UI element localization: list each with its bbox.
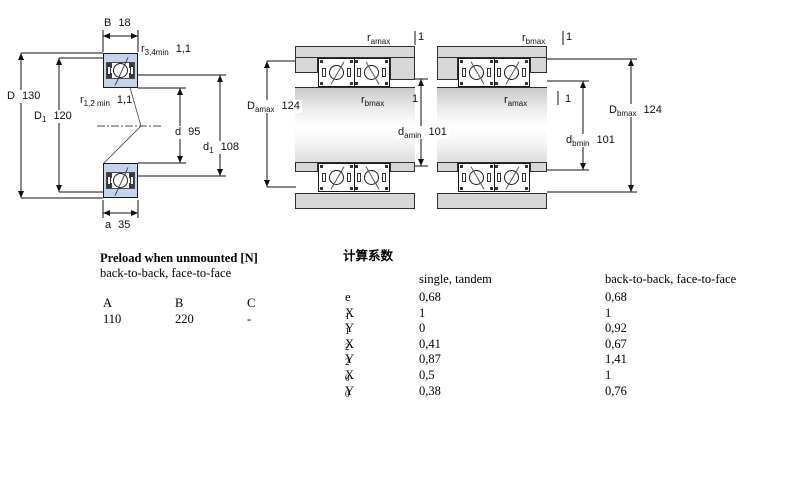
preload-value-row: 110 220 - xyxy=(100,312,340,328)
dim-label-a: a35 xyxy=(105,219,130,232)
dim-value-rbmax-mid: 1 xyxy=(412,93,418,105)
calculation-factors-table: 计算系数 single, tandem back-to-back, face-t… xyxy=(343,249,783,399)
bearing-cross-section-top xyxy=(103,53,138,88)
preload-header-row: A B C xyxy=(100,296,340,312)
shoulder-step xyxy=(390,162,415,172)
dim-value-rbmax-right: 1 xyxy=(566,31,572,43)
shoulder-step xyxy=(530,57,547,73)
bearing-cell xyxy=(354,164,389,191)
factor-row: X1 1 1 xyxy=(343,306,783,322)
figure-face-to-face xyxy=(437,46,547,209)
dim-label-ramax-right: ramax xyxy=(504,94,527,107)
preload-value-C: - xyxy=(247,312,251,327)
dim-label-dbmin: dbmin101 xyxy=(564,134,617,147)
dim-label-width-B: B18 xyxy=(104,17,131,30)
bearing-cell xyxy=(319,164,354,191)
dim-value-ramax-mid: 1 xyxy=(418,31,424,43)
preload-table: Preload when unmounted [N] back-to-back,… xyxy=(100,251,340,328)
shoulder-step xyxy=(437,57,458,80)
preload-col-B: B xyxy=(175,296,183,311)
shoulder-step xyxy=(295,162,318,172)
bearing-pair xyxy=(318,58,390,87)
bearing-cell xyxy=(494,164,529,191)
cage-bar xyxy=(107,176,111,185)
shoulder-step xyxy=(390,57,415,80)
dim-label-Dbmax: Dbmax124 xyxy=(607,104,664,117)
preload-table-subtitle: back-to-back, face-to-face xyxy=(100,266,340,281)
dim-label-bore-d: d95 xyxy=(173,126,202,139)
dim-label-D1: D1120 xyxy=(32,110,74,123)
dim-label-rbmax-mid: rbmax xyxy=(361,94,384,107)
factors-header-row: single, tandem back-to-back, face-to-fac… xyxy=(343,272,783,288)
dim-label-d1: d1108 xyxy=(201,141,241,154)
bearing-cell xyxy=(459,59,494,86)
shoulder-step xyxy=(530,162,547,172)
cage-bar xyxy=(130,176,134,185)
bearing-pair xyxy=(458,58,530,87)
cage-bar xyxy=(130,66,134,75)
factor-row: Y2 0,87 1,41 xyxy=(343,352,783,368)
dim-label-outer-diameter-D: D130 xyxy=(5,90,42,103)
factor-row: X0 0,5 1 xyxy=(343,368,783,384)
bearing-cell xyxy=(319,59,354,86)
dim-label-r12min: r1,2 min1,1 xyxy=(80,94,132,107)
bearing-cell xyxy=(494,59,529,86)
bearing-pair xyxy=(458,163,530,192)
dim-value-ramax-right: 1 xyxy=(565,93,571,105)
dim-label-r34min: r3,4min1,1 xyxy=(141,43,191,56)
bearing-pair xyxy=(318,163,390,192)
dim-label-rbmax-right: rbmax xyxy=(522,32,545,45)
factor-row: X2 0,41 0,67 xyxy=(343,337,783,353)
shaft-section xyxy=(437,87,547,163)
factor-row: e 0,68 0,68 xyxy=(343,290,783,306)
cage-bar xyxy=(107,66,111,75)
dim-label-damin: damin101 xyxy=(396,126,449,139)
shoulder-step xyxy=(437,162,458,172)
factors-rows: e 0,68 0,68 X1 1 1 Y1 0 0,92 X2 0,41 0,6… xyxy=(343,290,783,399)
factor-row: Y1 0 0,92 xyxy=(343,321,783,337)
preload-table-title: Preload when unmounted [N] xyxy=(100,251,340,266)
bearing-datasheet-page: { "colors": { "bearing_fill": "#c5d3ee",… xyxy=(0,0,800,500)
dim-label-Damax: Damax124 xyxy=(245,100,302,113)
dim-label-ramax-mid: ramax xyxy=(367,32,390,45)
preload-value-B: 220 xyxy=(175,312,194,327)
preload-col-A: A xyxy=(103,296,112,311)
preload-col-C: C xyxy=(247,296,255,311)
factors-table-title: 计算系数 xyxy=(343,249,783,264)
housing-band-bottom xyxy=(295,193,415,209)
shaft-section xyxy=(295,87,415,163)
bearing-cross-section-bottom xyxy=(103,163,138,198)
factors-col-paired: back-to-back, face-to-face xyxy=(605,272,736,287)
factor-row: Y0 0,38 0,76 xyxy=(343,384,783,400)
preload-value-A: 110 xyxy=(103,312,121,327)
factors-col-single: single, tandem xyxy=(419,272,492,287)
housing-band-bottom xyxy=(437,193,547,209)
bearing-cell xyxy=(354,59,389,86)
shoulder-step xyxy=(295,57,318,73)
bearing-cell xyxy=(459,164,494,191)
